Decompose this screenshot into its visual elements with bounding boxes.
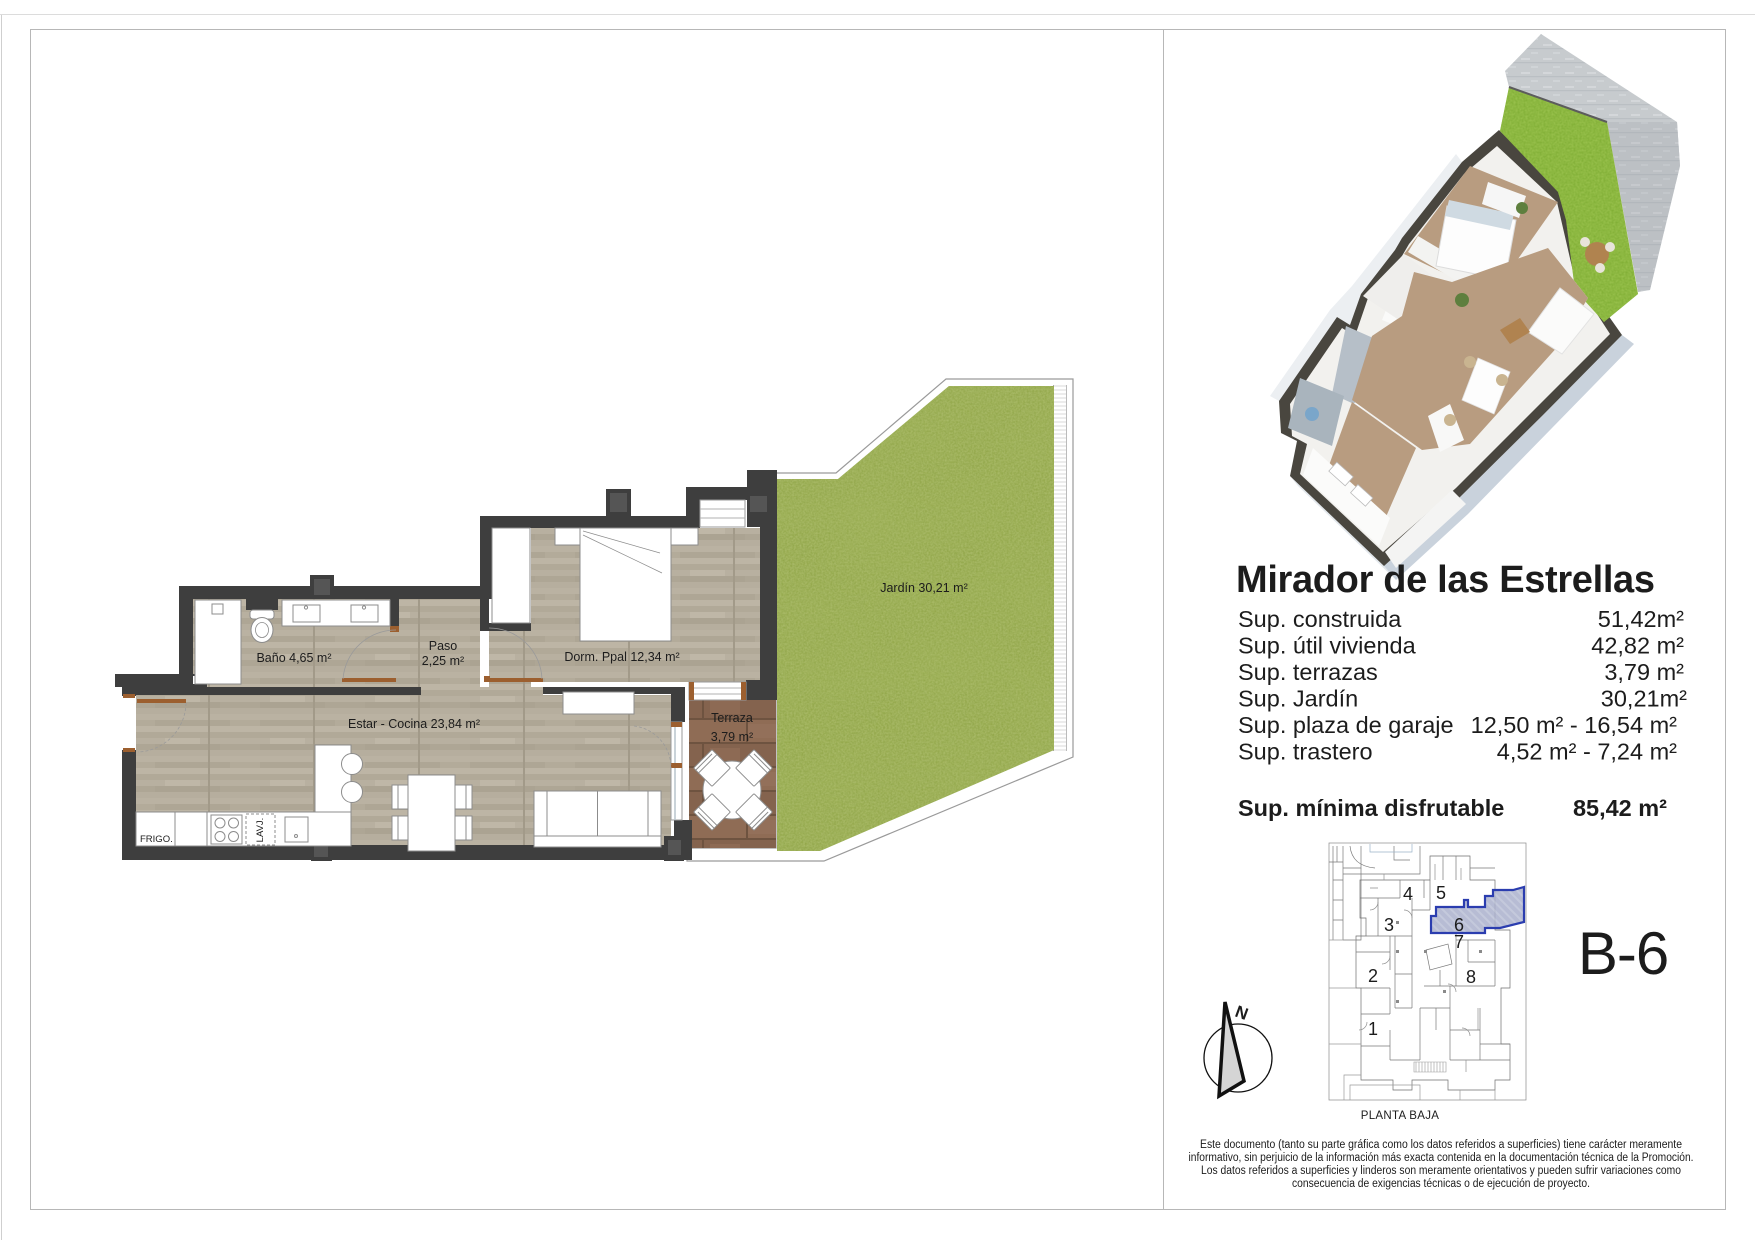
svg-text:3,79 m²: 3,79 m² [1604,659,1684,685]
svg-text:Estar - Cocina 23,84 m²: Estar - Cocina 23,84 m² [348,717,480,731]
svg-text:7: 7 [1454,932,1464,952]
svg-text:51,42m²: 51,42m² [1598,606,1684,632]
svg-text:2,25 m²: 2,25 m² [422,654,464,668]
svg-text:Sup. útil vivienda: Sup. útil vivienda [1238,633,1417,659]
svg-text:42,82 m²: 42,82 m² [1591,633,1684,659]
svg-text:Terraza: Terraza [711,711,753,725]
svg-text:2: 2 [1368,966,1378,986]
svg-text:Sup. plaza de garaje: Sup. plaza de garaje [1238,712,1454,738]
svg-text:Mirador de las Estrellas: Mirador de las Estrellas [1236,559,1655,601]
svg-text:Sup. trastero: Sup. trastero [1238,739,1373,765]
svg-text:consecuencia de exigencias téc: consecuencia de exigencias técnicas o de… [1292,1178,1590,1190]
svg-text:Sup. construida: Sup. construida [1238,606,1402,632]
svg-text:informativo, sin perjuicio de: informativo, sin perjuicio de la informa… [1189,1152,1694,1164]
svg-text:85,42 m²: 85,42 m² [1573,795,1667,821]
svg-text:Paso: Paso [429,639,458,653]
svg-text:B-6: B-6 [1578,920,1668,987]
svg-text:Sup. Jardín: Sup. Jardín [1238,686,1358,712]
svg-text:Los datos referidos a superfic: Los datos referidos a superficies y lind… [1201,1165,1681,1177]
svg-text:Este documento (tanto su parte: Este documento (tanto su parte gráfica c… [1200,1139,1682,1151]
svg-text:FRIGO.: FRIGO. [140,834,173,845]
svg-text:1: 1 [1368,1019,1378,1039]
svg-text:3,79 m²: 3,79 m² [711,730,753,744]
svg-text:Jardín 30,21 m²: Jardín 30,21 m² [880,581,968,595]
svg-text:30,21m²: 30,21m² [1601,686,1687,712]
svg-text:LAVJ.: LAVJ. [255,818,266,843]
svg-text:PLANTA BAJA: PLANTA BAJA [1361,1110,1440,1122]
svg-text:Sup. mínima disfrutable: Sup. mínima disfrutable [1238,795,1504,821]
svg-text:5: 5 [1436,883,1446,903]
svg-text:4,52 m² - 7,24 m²: 4,52 m² - 7,24 m² [1497,739,1677,765]
svg-text:Sup. terrazas: Sup. terrazas [1238,659,1378,685]
svg-text:Dorm. Ppal 12,34 m²: Dorm. Ppal 12,34 m² [564,650,679,664]
svg-text:12,50 m² - 16,54 m²: 12,50 m² - 16,54 m² [1471,712,1678,738]
svg-text:Baño 4,65 m²: Baño 4,65 m² [256,651,331,665]
svg-text:3: 3 [1384,915,1394,935]
svg-text:8: 8 [1466,967,1476,987]
svg-text:4: 4 [1403,884,1413,904]
